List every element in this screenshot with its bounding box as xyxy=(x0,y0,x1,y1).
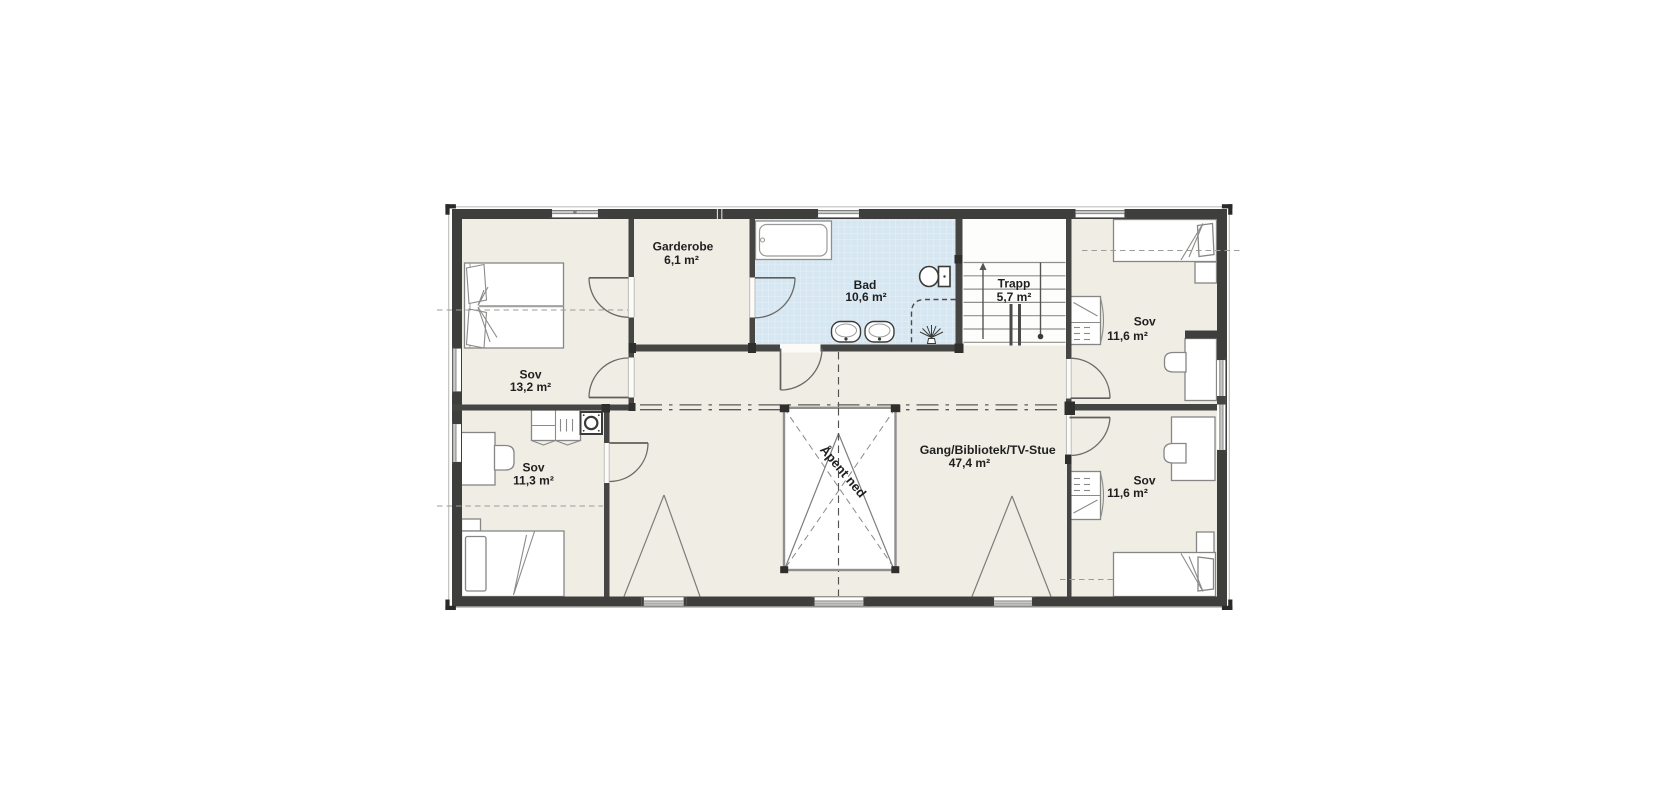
svg-text:Gang/Bibliotek/TV-Stue: Gang/Bibliotek/TV-Stue xyxy=(920,443,1056,457)
svg-text:10,6 m²: 10,6 m² xyxy=(845,290,886,304)
svg-text:Garderobe: Garderobe xyxy=(653,240,714,254)
svg-text:5,7 m²: 5,7 m² xyxy=(997,290,1032,304)
svg-text:11,3 m²: 11,3 m² xyxy=(513,474,554,488)
svg-text:47,4 m²: 47,4 m² xyxy=(949,456,990,470)
svg-text:6,1 m²: 6,1 m² xyxy=(664,253,699,267)
svg-text:Trapp: Trapp xyxy=(998,277,1031,291)
svg-text:Sov: Sov xyxy=(522,461,544,475)
svg-text:11,6 m²: 11,6 m² xyxy=(1107,329,1148,343)
svg-text:Sov: Sov xyxy=(1134,315,1156,329)
svg-text:13,2 m²: 13,2 m² xyxy=(510,380,551,394)
svg-text:11,6 m²: 11,6 m² xyxy=(1107,486,1148,500)
